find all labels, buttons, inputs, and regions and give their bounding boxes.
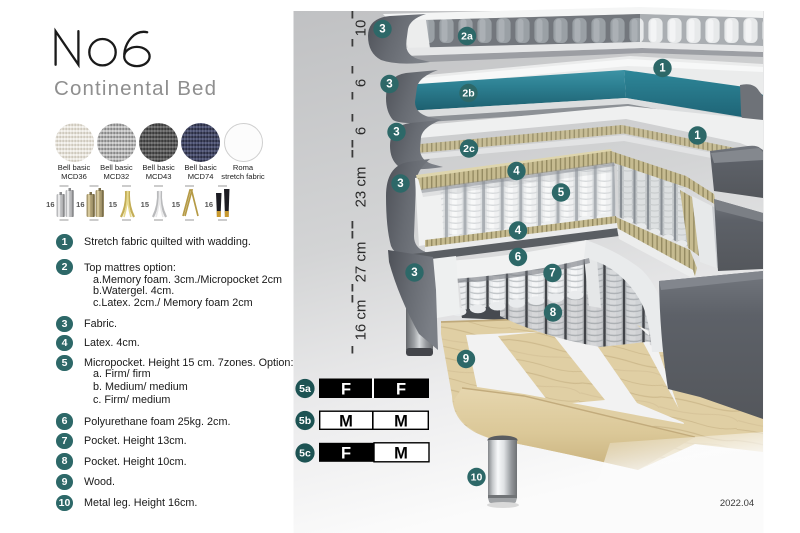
svg-text:9: 9 (463, 354, 469, 366)
svg-text:2c: 2c (463, 143, 475, 155)
svg-text:10: 10 (471, 472, 483, 484)
svg-text:15: 15 (141, 200, 149, 209)
svg-text:6: 6 (515, 252, 521, 264)
svg-text:F: F (341, 445, 351, 463)
svg-text:15: 15 (172, 200, 180, 209)
svg-text:5: 5 (558, 187, 565, 199)
svg-text:2022.04: 2022.04 (720, 498, 754, 509)
svg-text:1: 1 (694, 130, 701, 142)
svg-text:6: 6 (353, 127, 370, 135)
svg-text:4: 4 (515, 225, 522, 237)
svg-text:23 cm: 23 cm (353, 167, 370, 208)
svg-text:3: 3 (411, 267, 417, 279)
svg-text:8: 8 (550, 307, 557, 319)
svg-text:16: 16 (205, 200, 213, 209)
svg-text:3: 3 (393, 127, 399, 139)
svg-text:5b: 5b (299, 415, 311, 427)
svg-text:3: 3 (386, 79, 392, 91)
svg-text:27 cm: 27 cm (353, 242, 370, 283)
svg-text:7: 7 (549, 268, 555, 280)
svg-text:6: 6 (353, 79, 370, 87)
svg-text:10: 10 (353, 20, 370, 37)
svg-text:3: 3 (397, 178, 403, 190)
svg-text:5c: 5c (299, 448, 311, 460)
svg-text:F: F (396, 381, 406, 399)
svg-text:M: M (339, 413, 353, 431)
svg-text:16: 16 (76, 200, 84, 209)
svg-text:M: M (394, 413, 408, 431)
svg-text:16: 16 (46, 200, 54, 209)
svg-text:1: 1 (659, 63, 666, 75)
svg-text:5a: 5a (299, 383, 311, 395)
svg-text:4: 4 (513, 166, 520, 178)
svg-text:15: 15 (109, 200, 117, 209)
svg-text:Continental Bed: Continental Bed (54, 77, 216, 100)
svg-text:M: M (394, 445, 408, 463)
svg-text:16 cm: 16 cm (353, 300, 370, 341)
svg-text:2a: 2a (461, 31, 473, 43)
svg-text:2b: 2b (462, 88, 474, 100)
svg-text:3: 3 (379, 24, 385, 36)
svg-text:F: F (341, 381, 351, 399)
